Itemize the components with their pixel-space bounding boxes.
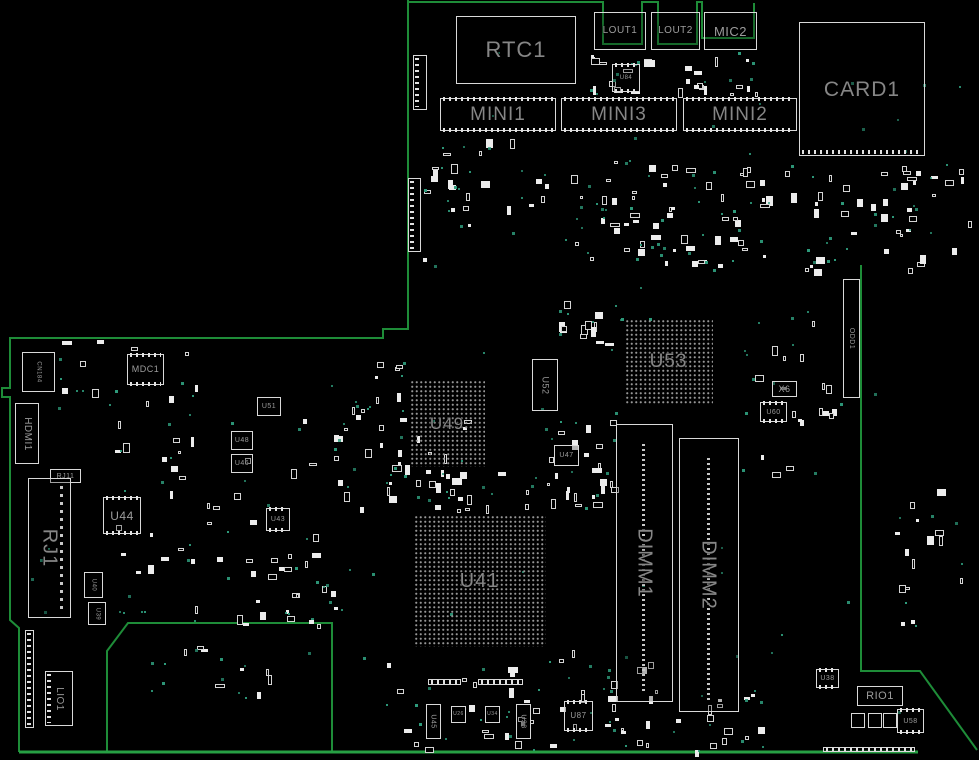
component-dimm1[interactable]: DIMM1 xyxy=(616,424,673,702)
passive-part xyxy=(207,503,210,509)
passive-part xyxy=(593,502,603,508)
via-dot xyxy=(401,375,403,377)
passive-part xyxy=(829,175,832,182)
via-dot xyxy=(673,731,675,733)
via-dot xyxy=(752,378,755,381)
passive-part xyxy=(590,257,594,261)
via-dot xyxy=(874,393,877,396)
passive-part xyxy=(458,497,463,501)
passive-part xyxy=(338,480,343,486)
component-u84[interactable]: U84 xyxy=(612,64,640,92)
passive-part xyxy=(460,472,467,479)
passive-part xyxy=(614,161,618,164)
via-dot xyxy=(482,668,485,671)
via-dot xyxy=(625,162,628,165)
passive-part xyxy=(633,220,639,223)
via-dot xyxy=(959,86,961,88)
passive-part xyxy=(510,139,515,149)
component-rtc1[interactable]: RTC1 xyxy=(456,16,576,84)
passive-part xyxy=(704,86,707,95)
via-dot xyxy=(551,438,553,440)
component-label: MDC1 xyxy=(132,365,160,374)
passive-part xyxy=(451,164,458,174)
passive-part xyxy=(760,180,765,186)
via-dot xyxy=(227,577,230,580)
passive-part xyxy=(653,223,659,229)
component-label: U46 xyxy=(235,460,249,467)
via-dot xyxy=(306,538,308,540)
passive-part xyxy=(529,204,534,207)
via-dot xyxy=(603,688,605,690)
via-dot xyxy=(82,390,84,392)
passive-part xyxy=(685,66,692,71)
passive-part xyxy=(404,729,412,733)
passive-part xyxy=(694,85,699,89)
via-dot xyxy=(559,310,562,313)
via-dot xyxy=(508,711,510,713)
passive-part xyxy=(758,727,765,734)
passive-part xyxy=(671,207,675,210)
component-hdmi1[interactable]: HDMI1 xyxy=(15,403,39,464)
passive-part xyxy=(615,718,619,721)
passive-part xyxy=(486,505,489,514)
component-u49[interactable]: U49 xyxy=(409,379,485,467)
passive-part xyxy=(632,196,635,200)
component-u33[interactable]: U33 xyxy=(516,704,531,739)
passive-part xyxy=(632,191,637,194)
passive-part xyxy=(344,428,348,431)
passive-part xyxy=(481,181,490,188)
via-dot xyxy=(905,602,907,604)
via-dot xyxy=(424,189,427,192)
via-dot xyxy=(840,403,843,406)
passive-part xyxy=(467,495,472,505)
passive-part xyxy=(376,397,379,404)
passive-part xyxy=(715,57,718,67)
component-u44[interactable]: U44 xyxy=(103,497,141,534)
component-mini1[interactable]: MINI1 xyxy=(440,98,556,131)
passive-part xyxy=(173,438,180,443)
connector-top-a xyxy=(413,55,427,110)
via-dot xyxy=(469,171,471,173)
passive-part xyxy=(468,224,471,227)
passive-part xyxy=(377,362,384,368)
passive-part xyxy=(822,383,825,390)
passive-part xyxy=(446,474,450,479)
passive-part xyxy=(250,520,257,525)
passive-part xyxy=(596,341,604,344)
via-dot xyxy=(428,499,431,502)
passive-part xyxy=(738,240,744,246)
component-u34[interactable]: U34 xyxy=(485,706,500,723)
component-lout1[interactable]: LOUT1 xyxy=(594,12,646,50)
passive-part xyxy=(927,536,934,545)
component-label: ODD1 xyxy=(848,328,855,349)
via-dot xyxy=(846,248,848,250)
passive-part xyxy=(952,248,957,255)
passive-part xyxy=(243,623,249,626)
via-dot xyxy=(762,746,764,748)
via-dot xyxy=(625,745,627,747)
component-rio1[interactable]: RIO1 xyxy=(857,686,903,706)
passive-part xyxy=(661,174,668,178)
passive-part xyxy=(207,522,212,525)
passive-part xyxy=(443,153,451,156)
passive-part xyxy=(706,182,712,190)
via-dot xyxy=(308,652,311,655)
via-dot xyxy=(576,218,578,220)
component-u51[interactable]: U51 xyxy=(257,397,281,416)
passive-part xyxy=(819,408,823,416)
via-dot xyxy=(746,354,748,356)
passive-part xyxy=(146,401,149,407)
via-dot xyxy=(931,515,934,518)
passive-part xyxy=(379,425,384,431)
passive-part xyxy=(968,221,972,228)
passive-part xyxy=(572,650,575,658)
via-dot xyxy=(581,227,583,229)
component-mini3[interactable]: MINI3 xyxy=(561,98,677,131)
via-dot xyxy=(386,704,388,706)
via-dot xyxy=(608,669,611,672)
via-dot xyxy=(568,677,570,679)
passive-part xyxy=(686,246,695,251)
passive-part xyxy=(545,184,549,189)
passive-part xyxy=(356,415,361,420)
component-u87[interactable]: U87 xyxy=(564,701,593,731)
passive-part xyxy=(939,536,943,546)
passive-part xyxy=(213,506,220,510)
via-dot xyxy=(721,213,723,215)
passive-part xyxy=(526,490,529,495)
passive-part xyxy=(916,171,921,176)
passive-part xyxy=(171,466,178,472)
passive-part xyxy=(624,248,630,252)
passive-part xyxy=(510,667,515,677)
component-mdc1[interactable]: MDC1 xyxy=(127,354,164,385)
passive-part xyxy=(450,489,455,496)
passive-part xyxy=(484,734,494,739)
passive-part xyxy=(913,181,916,185)
passive-part xyxy=(150,533,153,537)
via-dot xyxy=(913,205,915,207)
via-dot xyxy=(356,405,359,408)
passive-part xyxy=(678,88,683,98)
passive-part xyxy=(541,196,545,203)
via-dot xyxy=(442,473,444,475)
component-u26[interactable]: U26 xyxy=(451,706,466,723)
via-dot xyxy=(221,678,224,681)
passive-part xyxy=(185,352,189,356)
component-label: U41 xyxy=(460,571,500,591)
passive-part xyxy=(592,468,602,473)
passive-part xyxy=(881,214,888,222)
via-dot xyxy=(585,507,588,510)
passive-part xyxy=(288,554,292,559)
via-dot xyxy=(162,682,165,685)
passive-part xyxy=(907,208,912,212)
passive-part xyxy=(435,505,441,510)
via-dot xyxy=(826,242,828,244)
passive-part xyxy=(429,481,436,488)
component-label: U26 xyxy=(453,712,464,717)
via-dot xyxy=(417,496,420,499)
via-dot xyxy=(187,559,190,562)
passive-part xyxy=(605,343,614,346)
component-label: U53 xyxy=(650,352,688,371)
component-label: U39 xyxy=(94,607,100,620)
passive-part xyxy=(123,443,130,453)
passive-part xyxy=(815,202,818,206)
via-dot xyxy=(955,522,958,525)
via-dot xyxy=(741,740,744,743)
passive-part xyxy=(425,747,434,753)
passive-part xyxy=(600,479,607,486)
passive-part xyxy=(309,463,317,466)
via-dot xyxy=(60,378,62,380)
component-u45[interactable]: U45 xyxy=(426,704,441,739)
via-dot xyxy=(341,609,343,611)
passive-part xyxy=(580,196,583,199)
via-dot xyxy=(892,216,894,218)
component-u47[interactable]: U47 xyxy=(554,445,579,466)
passive-part xyxy=(433,170,438,177)
passive-part xyxy=(909,216,917,222)
component-u41[interactable]: U41 xyxy=(413,514,546,647)
passive-part xyxy=(462,678,467,682)
via-dot xyxy=(544,174,546,176)
component-card1[interactable]: CARD1 xyxy=(799,22,925,156)
passive-part xyxy=(881,172,888,176)
via-dot xyxy=(512,232,515,235)
passive-part xyxy=(334,456,339,461)
via-dot xyxy=(588,185,591,188)
passive-part xyxy=(260,612,266,620)
component-label: U87 xyxy=(570,712,586,720)
via-dot xyxy=(238,692,240,694)
component-u40[interactable]: U40 xyxy=(84,572,103,598)
component-mini2[interactable]: MINI2 xyxy=(683,98,797,131)
via-dot xyxy=(447,200,449,202)
component-label: RIO1 xyxy=(866,691,894,702)
via-dot xyxy=(611,349,613,351)
via-dot xyxy=(634,137,637,140)
component-u46[interactable]: U46 xyxy=(231,454,253,473)
via-dot xyxy=(571,471,573,473)
passive-part xyxy=(303,419,307,424)
via-dot xyxy=(298,428,301,431)
passive-part xyxy=(605,724,611,727)
component-u60[interactable]: U60 xyxy=(760,402,787,422)
via-dot xyxy=(567,313,569,315)
passive-part xyxy=(400,418,407,422)
passive-part xyxy=(686,168,696,173)
component-lio1[interactable]: LIO1 xyxy=(45,671,73,726)
passive-part xyxy=(509,688,514,698)
component-label: DIMM1 xyxy=(635,528,655,597)
via-dot xyxy=(369,406,371,408)
via-dot xyxy=(458,188,460,190)
via-dot xyxy=(744,350,746,352)
passive-part xyxy=(234,493,241,500)
passive-part xyxy=(507,206,511,215)
passive-part xyxy=(389,482,392,485)
passive-part xyxy=(908,268,913,274)
passive-part xyxy=(331,591,336,597)
component-u52[interactable]: U52 xyxy=(532,359,558,411)
passive-part xyxy=(191,437,194,447)
passive-part xyxy=(843,185,850,192)
component-lout2[interactable]: LOUT2 xyxy=(651,12,700,50)
passive-part xyxy=(624,223,629,226)
passive-part xyxy=(747,86,750,92)
via-dot xyxy=(59,358,62,361)
via-dot xyxy=(533,749,535,751)
passive-part xyxy=(558,431,565,435)
component-x6[interactable]: X6 xyxy=(772,381,797,397)
via-dot xyxy=(334,448,337,451)
via-dot xyxy=(124,490,126,492)
via-dot xyxy=(791,165,794,168)
via-dot xyxy=(738,52,741,55)
component-u53[interactable]: U53 xyxy=(624,318,713,404)
via-dot xyxy=(480,719,482,721)
via-dot xyxy=(829,237,832,240)
passive-part xyxy=(667,213,673,218)
component-u48[interactable]: U48 xyxy=(231,431,253,450)
passive-part xyxy=(901,183,908,190)
via-dot xyxy=(521,170,523,172)
via-dot xyxy=(606,472,609,475)
passive-part xyxy=(724,728,733,735)
component-label: U60 xyxy=(766,409,780,416)
via-dot xyxy=(709,724,711,726)
passive-part xyxy=(630,213,640,218)
passive-part xyxy=(735,220,741,227)
passive-part xyxy=(375,376,378,379)
passive-part xyxy=(644,60,647,67)
via-dot xyxy=(827,260,830,263)
via-dot xyxy=(535,477,537,479)
passive-part xyxy=(721,194,724,202)
via-dot xyxy=(545,428,548,431)
via-dot xyxy=(349,569,351,571)
via-dot xyxy=(573,739,575,741)
passive-part xyxy=(584,453,589,457)
via-dot xyxy=(565,239,567,241)
via-dot xyxy=(343,423,345,425)
passive-part xyxy=(389,496,397,503)
passive-part xyxy=(673,249,676,252)
via-dot xyxy=(120,450,122,452)
component-label: U38 xyxy=(820,675,834,682)
passive-part xyxy=(457,509,461,513)
passive-part xyxy=(665,261,668,266)
component-odd1[interactable]: ODD1 xyxy=(843,279,860,398)
passive-part xyxy=(197,646,204,650)
passive-part xyxy=(536,179,542,184)
via-dot xyxy=(109,404,111,406)
via-dot xyxy=(750,202,752,204)
passive-part xyxy=(396,365,403,369)
passive-part xyxy=(161,557,169,561)
tick-strip-b xyxy=(478,679,523,685)
passive-part xyxy=(387,487,390,496)
passive-part xyxy=(296,594,299,598)
passive-part xyxy=(810,265,813,268)
passive-part xyxy=(179,476,186,480)
passive-part xyxy=(686,79,690,84)
passive-part xyxy=(118,421,121,429)
via-dot xyxy=(454,186,457,189)
passive-part xyxy=(195,606,198,614)
passive-part xyxy=(920,255,926,264)
passive-part xyxy=(614,228,620,234)
component-u43[interactable]: U43 xyxy=(266,508,290,531)
via-dot xyxy=(847,601,850,604)
via-dot xyxy=(460,225,463,228)
via-dot xyxy=(713,269,716,272)
via-dot xyxy=(704,81,706,83)
passive-part xyxy=(169,396,174,403)
passive-part xyxy=(602,196,607,205)
passive-part xyxy=(595,312,603,319)
passive-part xyxy=(599,62,607,65)
component-label: RJ1 xyxy=(39,529,59,568)
passive-part xyxy=(184,649,187,656)
passive-part xyxy=(601,486,605,494)
component-u58[interactable]: U58 xyxy=(897,709,924,733)
via-dot xyxy=(792,344,794,346)
passive-part xyxy=(575,504,582,507)
via-dot xyxy=(285,612,287,614)
via-dot xyxy=(745,699,748,702)
passive-part xyxy=(857,199,863,207)
passive-part xyxy=(97,340,104,344)
passive-part xyxy=(398,450,402,457)
via-dot xyxy=(807,249,810,252)
via-dot xyxy=(390,474,392,476)
passive-part xyxy=(361,409,365,413)
component-cn184[interactable]: CN184 xyxy=(22,352,55,392)
passive-part xyxy=(352,407,355,415)
component-label: X6 xyxy=(778,385,790,394)
via-dot xyxy=(446,491,448,493)
via-dot xyxy=(596,203,598,205)
via-dot xyxy=(119,611,121,613)
passive-part xyxy=(755,375,764,382)
tick-strip-a xyxy=(428,679,461,685)
component-dimm2[interactable]: DIMM2 xyxy=(679,438,739,712)
passive-part xyxy=(730,93,734,96)
component-label: U58 xyxy=(903,718,917,725)
passive-part xyxy=(451,208,455,212)
passive-part xyxy=(215,684,225,688)
component-rj1[interactable]: RJ1 xyxy=(28,478,71,618)
passive-part xyxy=(646,721,650,729)
component-u39[interactable]: U39 xyxy=(88,602,106,625)
via-dot xyxy=(434,265,437,268)
via-dot xyxy=(189,414,191,416)
component-mic2[interactable]: MIC2 xyxy=(704,12,757,50)
via-dot xyxy=(899,517,901,519)
passive-part xyxy=(901,622,905,626)
component-label: LOUT1 xyxy=(603,26,638,36)
via-dot xyxy=(807,311,809,313)
component-u38[interactable]: U38 xyxy=(816,669,839,688)
via-dot xyxy=(754,690,756,692)
via-dot xyxy=(812,176,814,178)
